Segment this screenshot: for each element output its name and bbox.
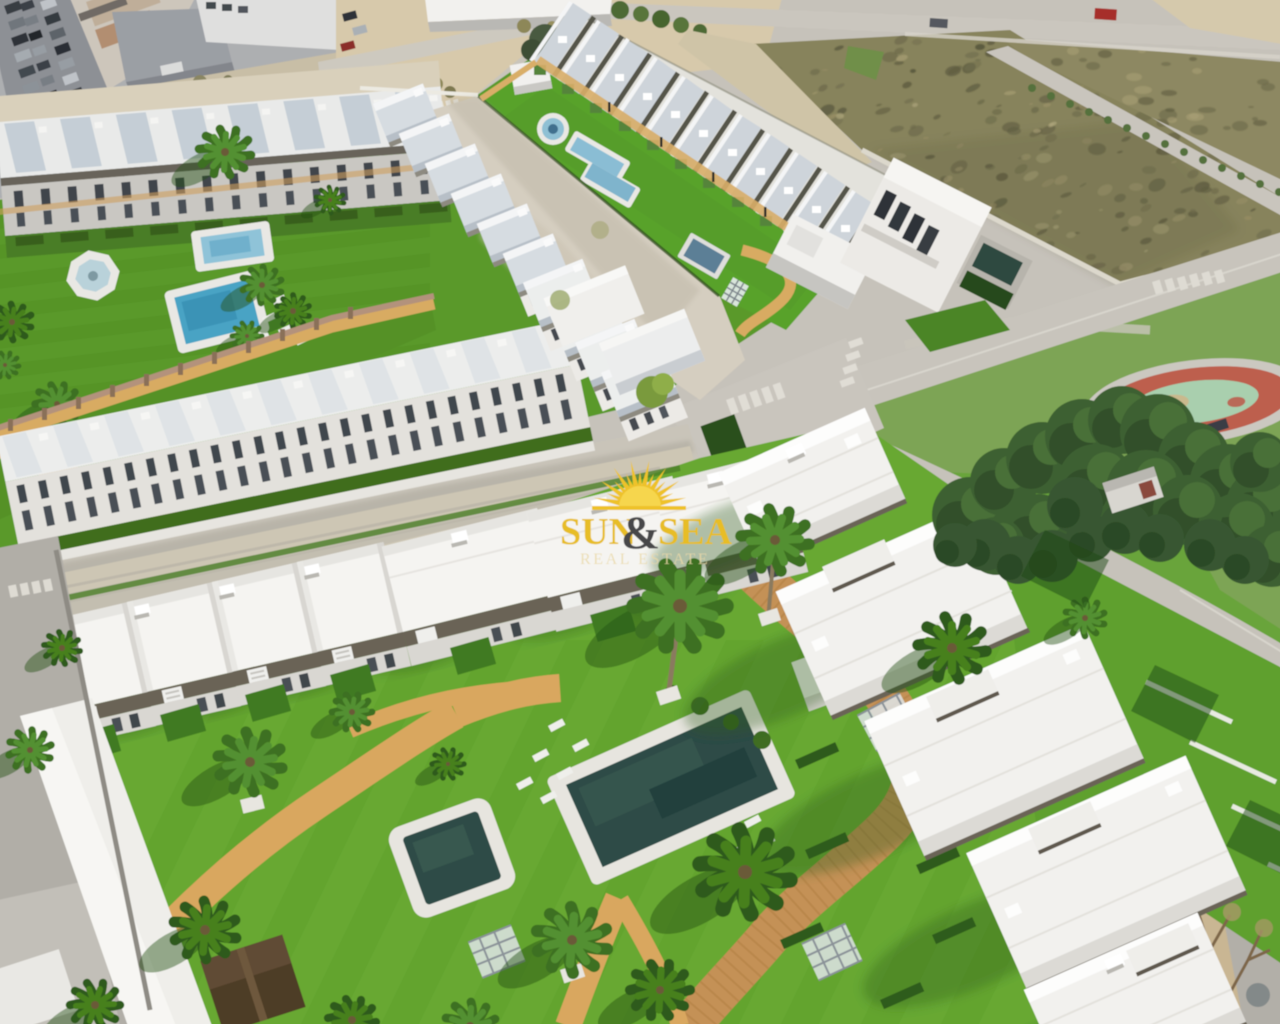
svg-text:REAL ESTATE: REAL ESTATE (580, 551, 710, 568)
svg-text:SEA: SEA (658, 511, 732, 553)
